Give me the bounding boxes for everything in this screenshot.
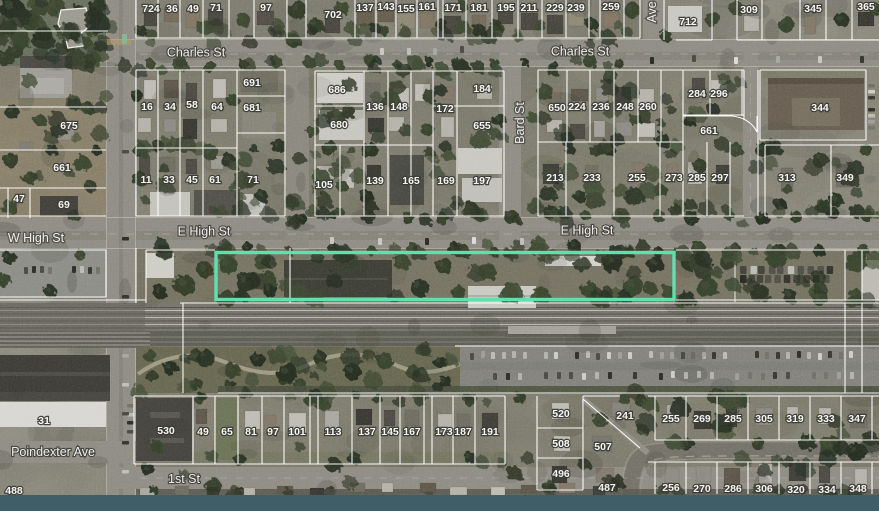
svg-text:309: 309 <box>740 4 758 16</box>
svg-text:34: 34 <box>164 101 176 113</box>
svg-text:Charles St: Charles St <box>551 45 610 59</box>
svg-text:239: 239 <box>567 2 585 14</box>
svg-text:259: 259 <box>602 1 620 13</box>
svg-text:661: 661 <box>53 162 71 174</box>
svg-text:248: 248 <box>616 101 634 113</box>
svg-text:64: 64 <box>211 101 223 113</box>
svg-text:691: 691 <box>243 77 261 89</box>
svg-text:113: 113 <box>325 426 342 438</box>
svg-text:296: 296 <box>710 88 728 100</box>
svg-text:61: 61 <box>209 174 221 186</box>
svg-text:47: 47 <box>13 193 25 205</box>
svg-text:155: 155 <box>397 3 415 15</box>
svg-text:Ave: Ave <box>645 1 659 22</box>
svg-text:496: 496 <box>552 468 570 480</box>
svg-text:306: 306 <box>755 483 773 495</box>
svg-text:508: 508 <box>552 438 570 450</box>
svg-text:169: 169 <box>437 175 455 187</box>
svg-text:285: 285 <box>724 413 742 425</box>
svg-text:520: 520 <box>552 408 570 420</box>
svg-text:Bard St: Bard St <box>513 102 527 144</box>
svg-text:58: 58 <box>186 99 198 111</box>
svg-text:675: 675 <box>60 120 78 132</box>
svg-text:255: 255 <box>628 172 646 184</box>
svg-text:E High St: E High St <box>561 224 614 238</box>
svg-text:181: 181 <box>470 2 488 14</box>
svg-text:49: 49 <box>187 3 199 15</box>
svg-text:650: 650 <box>548 102 566 114</box>
svg-text:136: 136 <box>366 101 384 113</box>
svg-text:71: 71 <box>247 174 259 186</box>
svg-text:165: 165 <box>402 175 420 187</box>
svg-text:Charles St: Charles St <box>167 46 226 60</box>
svg-text:345: 345 <box>804 3 822 15</box>
svg-text:31: 31 <box>38 415 50 427</box>
svg-text:313: 313 <box>778 172 796 184</box>
svg-text:270: 270 <box>693 483 711 495</box>
svg-text:187: 187 <box>454 426 472 438</box>
svg-text:260: 260 <box>639 101 657 113</box>
svg-text:191: 191 <box>481 426 499 438</box>
svg-text:229: 229 <box>546 2 564 14</box>
svg-text:161: 161 <box>418 1 436 13</box>
svg-text:1st St: 1st St <box>168 472 200 486</box>
svg-text:344: 344 <box>811 102 829 114</box>
svg-text:71: 71 <box>210 2 222 14</box>
svg-text:347: 347 <box>848 413 866 425</box>
svg-text:213: 213 <box>546 172 564 184</box>
svg-text:211: 211 <box>521 2 538 14</box>
svg-text:297: 297 <box>711 172 729 184</box>
svg-text:712: 712 <box>679 16 697 28</box>
svg-text:33: 33 <box>163 174 175 186</box>
svg-text:36: 36 <box>166 3 178 15</box>
svg-text:681: 681 <box>243 102 261 114</box>
svg-text:349: 349 <box>836 172 854 184</box>
svg-text:224: 224 <box>568 101 586 113</box>
svg-text:E High St: E High St <box>178 225 231 239</box>
svg-text:233: 233 <box>583 172 601 184</box>
svg-text:319: 319 <box>786 413 804 425</box>
svg-text:305: 305 <box>755 413 773 425</box>
svg-text:172: 172 <box>436 103 454 115</box>
svg-text:137: 137 <box>358 426 376 438</box>
svg-text:487: 487 <box>598 482 616 494</box>
svg-text:148: 148 <box>390 101 408 113</box>
svg-text:284: 284 <box>688 88 706 100</box>
svg-text:334: 334 <box>818 484 836 496</box>
svg-text:97: 97 <box>267 426 279 438</box>
svg-text:101: 101 <box>288 426 306 438</box>
svg-text:269: 269 <box>693 413 711 425</box>
svg-text:105: 105 <box>315 179 333 191</box>
svg-text:236: 236 <box>592 101 610 113</box>
svg-text:81: 81 <box>245 426 257 438</box>
svg-text:702: 702 <box>324 9 342 21</box>
svg-text:11: 11 <box>140 174 151 186</box>
svg-text:256: 256 <box>662 482 680 494</box>
svg-text:171: 171 <box>444 2 462 14</box>
svg-text:365: 365 <box>857 1 875 13</box>
svg-text:45: 45 <box>186 174 198 186</box>
svg-text:320: 320 <box>787 484 805 496</box>
svg-text:507: 507 <box>594 441 612 453</box>
svg-text:273: 273 <box>665 172 683 184</box>
svg-text:530: 530 <box>157 425 175 437</box>
svg-text:197: 197 <box>473 175 491 187</box>
svg-text:139: 139 <box>366 175 384 187</box>
svg-text:16: 16 <box>141 101 153 113</box>
svg-text:167: 167 <box>403 426 421 438</box>
svg-text:65: 65 <box>221 426 233 438</box>
svg-text:97: 97 <box>260 2 272 14</box>
svg-text:686: 686 <box>328 84 346 96</box>
svg-text:333: 333 <box>817 413 835 425</box>
svg-text:724: 724 <box>142 3 160 15</box>
svg-text:661: 661 <box>700 125 718 137</box>
svg-text:255: 255 <box>662 413 680 425</box>
svg-text:173: 173 <box>435 426 453 438</box>
svg-text:49: 49 <box>197 426 209 438</box>
svg-text:195: 195 <box>497 2 515 14</box>
svg-text:285: 285 <box>688 172 706 184</box>
svg-text:348: 348 <box>849 483 867 495</box>
svg-text:W High St: W High St <box>8 231 65 245</box>
svg-text:241: 241 <box>616 410 634 422</box>
svg-text:145: 145 <box>381 426 399 438</box>
svg-text:137: 137 <box>356 2 374 14</box>
svg-text:69: 69 <box>58 199 70 211</box>
svg-text:184: 184 <box>473 83 491 95</box>
svg-text:143: 143 <box>377 1 395 13</box>
svg-text:286: 286 <box>724 483 742 495</box>
svg-text:Poindexter Ave: Poindexter Ave <box>11 445 95 459</box>
svg-text:655: 655 <box>473 120 491 132</box>
svg-text:680: 680 <box>330 119 348 131</box>
